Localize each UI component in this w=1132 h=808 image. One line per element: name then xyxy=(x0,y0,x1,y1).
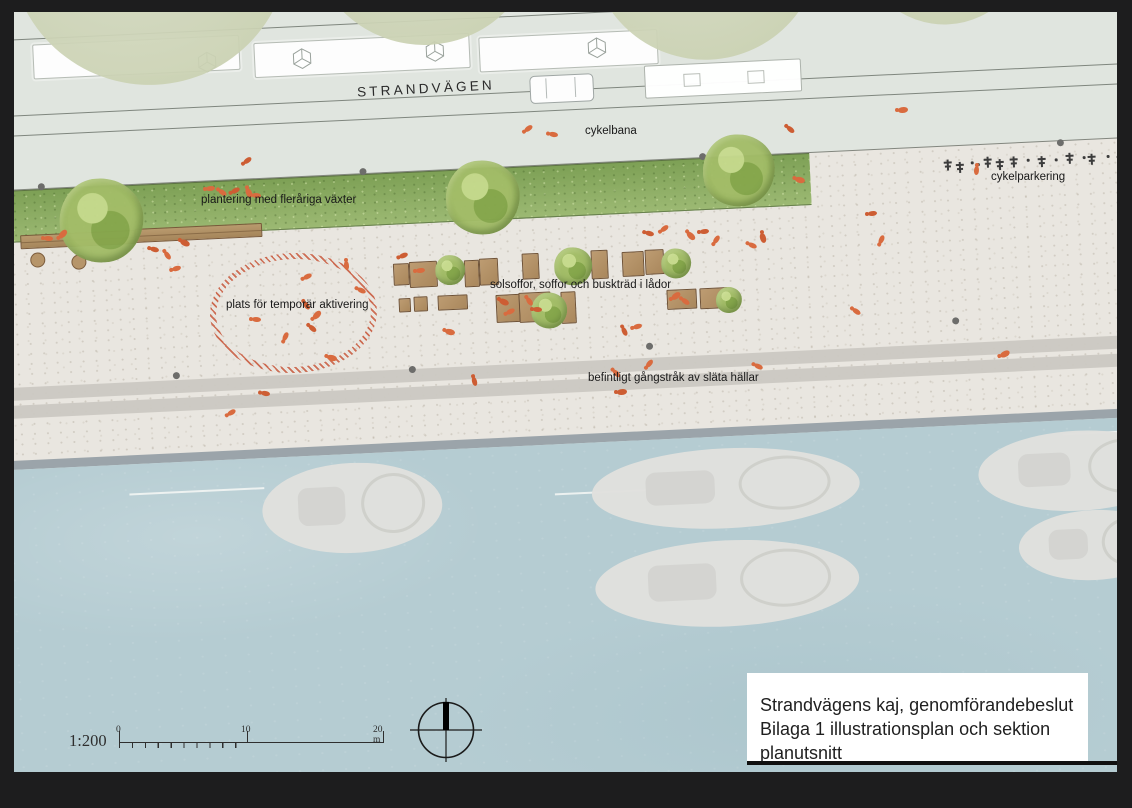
furniture-label: solsoffor, soffor och buskträd i lådor xyxy=(490,279,671,292)
scale-num-0: 0 xyxy=(116,725,121,735)
bike-parking-label: cykelparkering xyxy=(991,171,1065,184)
planting-label: plantering med fleråriga växter xyxy=(201,194,356,207)
scale-bar-minor-ticks xyxy=(119,743,248,748)
walkway-label: befintligt gångstråk av släta hällar xyxy=(588,372,759,385)
scale-num-10: 10 xyxy=(241,725,251,735)
illustration-plan: STRANDVÄGEN cykelbana cykelparkering pla… xyxy=(14,12,1117,772)
title-line-1: Strandvägens kaj, genomförandebeslut xyxy=(760,693,1088,717)
scale-num-20: 20 m xyxy=(373,725,383,745)
street-name-label: STRANDVÄGEN xyxy=(357,77,496,100)
annotation-layer: STRANDVÄGEN cykelbana cykelparkering pla… xyxy=(14,12,1117,772)
temporary-activation-label: plats för temporär aktivering xyxy=(226,299,369,312)
title-block: Strandvägens kaj, genomförandebeslut Bil… xyxy=(747,673,1088,763)
title-line-2: Bilaga 1 illustrationsplan och sektion xyxy=(760,717,1088,741)
scale-ratio: 1:200 xyxy=(69,731,107,751)
north-arrow-icon xyxy=(409,697,483,765)
title-block-rule xyxy=(747,761,1117,765)
plan-sheet-frame: STRANDVÄGEN cykelbana cykelparkering pla… xyxy=(0,0,1132,808)
bike-lane-label: cykelbana xyxy=(585,125,637,138)
